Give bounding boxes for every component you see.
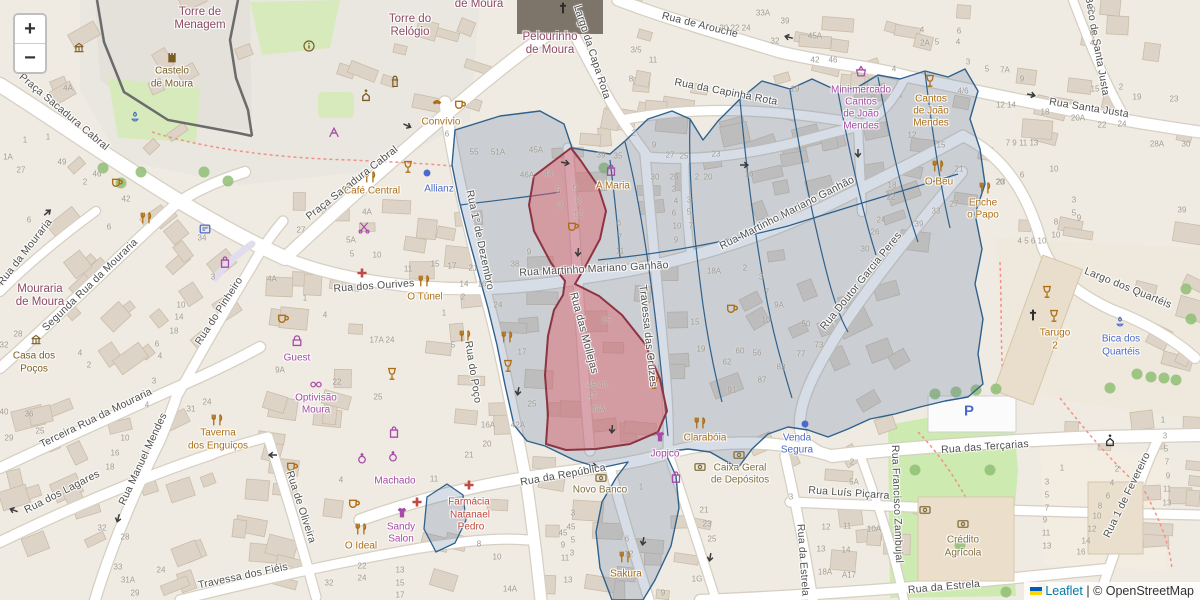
map-canvas[interactable]: Praça Sacadura CabralPraça Sacadura Cabr…	[0, 0, 1200, 600]
attribution-separator: |	[1086, 584, 1089, 598]
map-tiles	[0, 0, 1200, 600]
zoom-control: + −	[13, 13, 47, 74]
osm-link[interactable]: © OpenStreetMap	[1093, 584, 1194, 598]
ukraine-flag-icon	[1030, 587, 1042, 595]
zoom-out-button[interactable]: −	[15, 44, 45, 72]
zoom-in-button[interactable]: +	[15, 15, 45, 44]
attribution-bar: Leaflet | © OpenStreetMap	[1024, 582, 1200, 600]
leaflet-link[interactable]: Leaflet	[1045, 584, 1083, 598]
